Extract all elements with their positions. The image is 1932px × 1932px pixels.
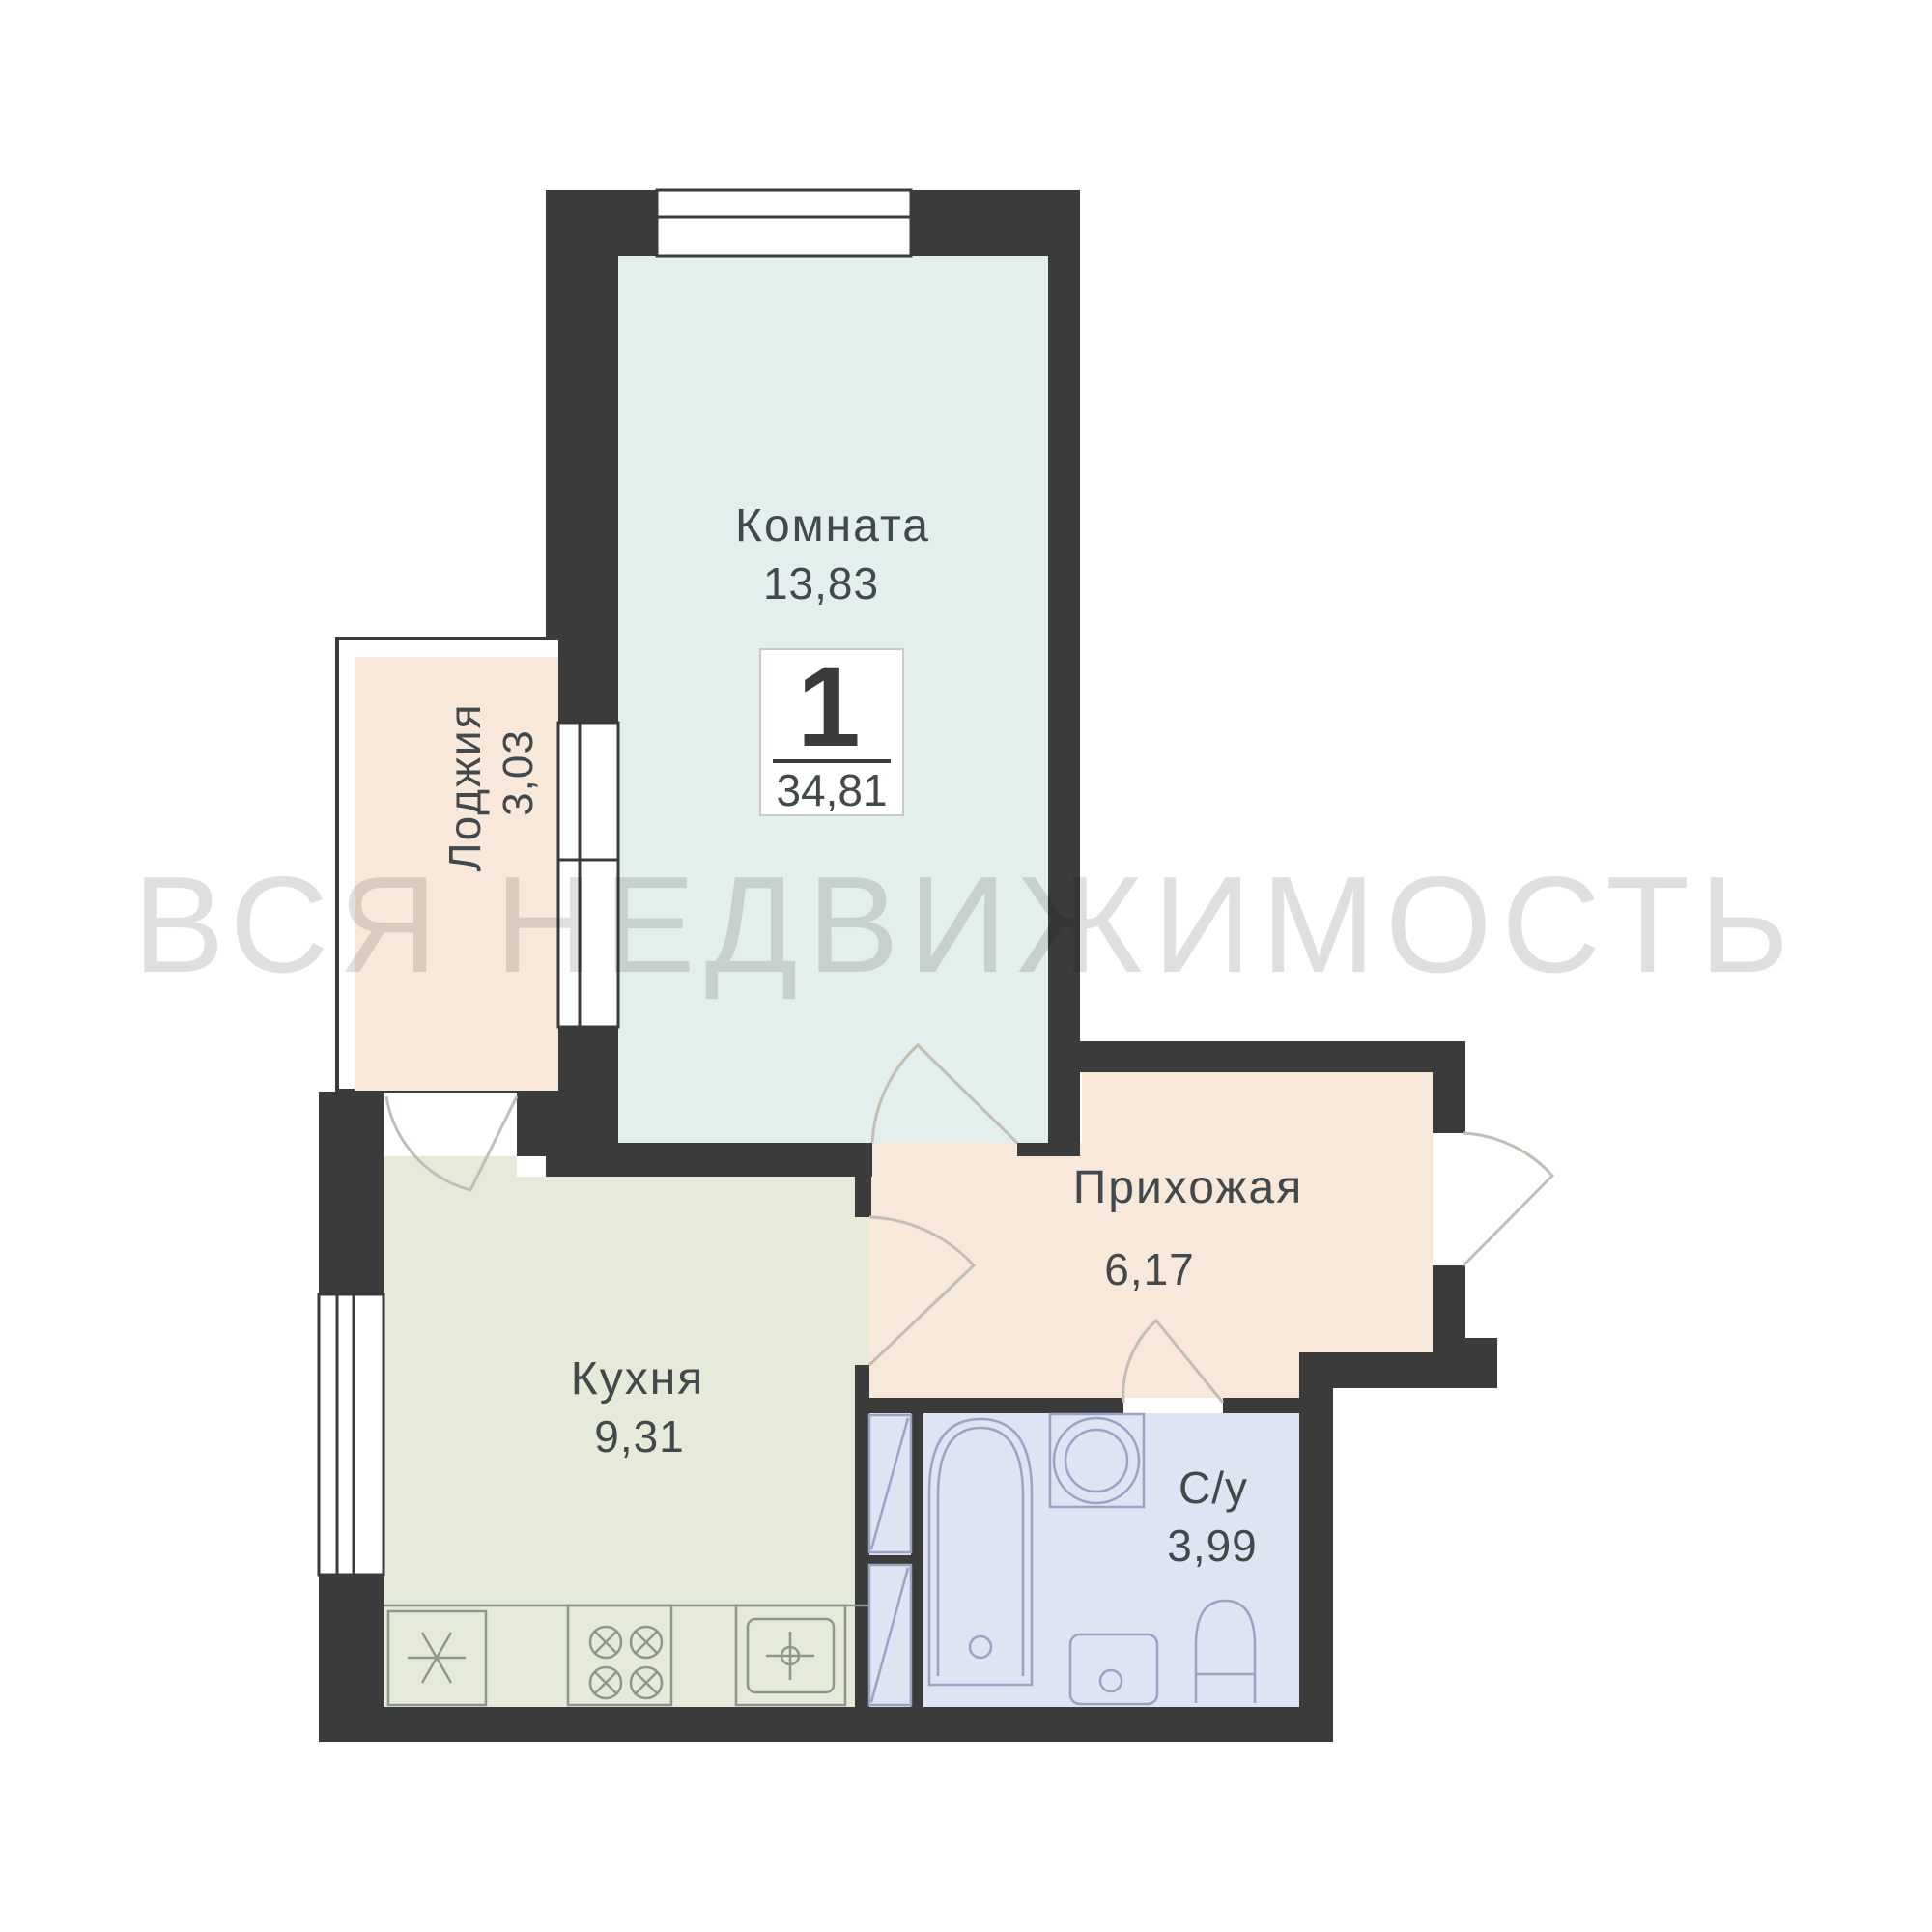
door-arc-entrance xyxy=(1463,1133,1552,1265)
wall-hallway-top xyxy=(1072,1041,1465,1072)
hallway-area: 6,17 xyxy=(1104,1244,1195,1294)
living-room-label: Комната xyxy=(735,500,930,552)
apartment-badge: 1 34,81 xyxy=(760,643,903,815)
wall-hallway-right-upper xyxy=(1433,1072,1465,1133)
wall-notch xyxy=(1465,1338,1497,1388)
window-top-icon xyxy=(657,190,911,256)
floorplan-page: Комната 13,83 Кухня 9,31 Прихожая 6,17 С… xyxy=(0,0,1932,1932)
wall-cabinet-separator xyxy=(867,1555,911,1564)
wall-bath-top-right xyxy=(1223,1398,1299,1413)
wall-cabinet-partition xyxy=(911,1413,923,1707)
living-room-area: 13,83 xyxy=(763,558,879,609)
window-kitchen-left-icon xyxy=(319,1294,384,1575)
bathroom-label: С/у xyxy=(1179,1463,1248,1513)
wall-right-room xyxy=(1048,190,1080,1156)
badge-total-area: 34,81 xyxy=(776,765,887,815)
wall-kitchen-bath xyxy=(855,1365,869,1707)
kitchen-area: 9,31 xyxy=(594,1411,685,1462)
wall-bath-top-left xyxy=(855,1398,1123,1413)
hallway-label: Прихожая xyxy=(1073,1162,1303,1213)
badge-room-count: 1 xyxy=(797,643,861,771)
watermark-text: ВСЯ НЕДВИЖИМОСТЬ xyxy=(0,846,1932,1005)
wall-left-upper xyxy=(546,190,618,640)
wall-loggia-corner xyxy=(517,1092,618,1156)
bathroom-area: 3,99 xyxy=(1167,1520,1258,1571)
wall-stub-room-door xyxy=(1017,1143,1053,1156)
wall-bath-right xyxy=(1299,1388,1333,1736)
loggia-area: 3,03 xyxy=(495,729,542,816)
kitchen-label: Кухня xyxy=(571,1353,704,1405)
wall-bottom xyxy=(319,1707,1333,1742)
wall-kitchen-hall-stub xyxy=(855,1156,871,1217)
